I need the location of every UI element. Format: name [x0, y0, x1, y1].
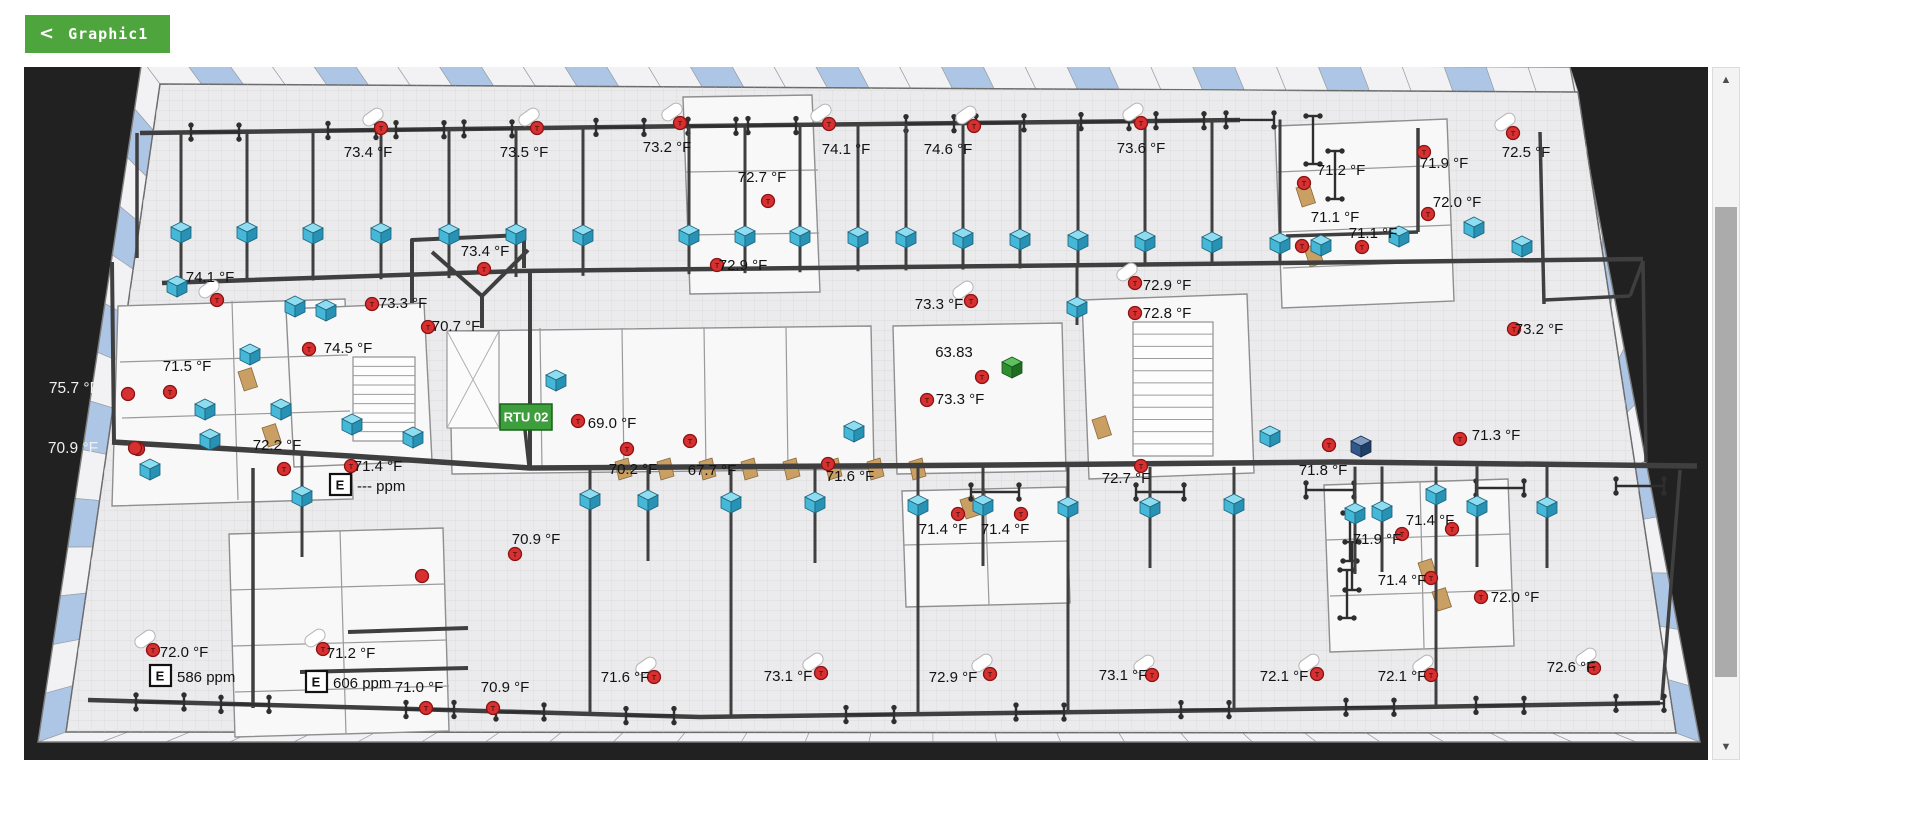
graphic-title: Graphic1 [68, 25, 148, 43]
temp-sensor-dot[interactable]: T [684, 435, 697, 448]
temp-label: 70.9 °F [481, 679, 530, 696]
vav-device-cube[interactable] [1058, 497, 1078, 518]
stairwell [1133, 322, 1213, 456]
temp-label: 72.2 °F [253, 437, 302, 454]
temp-label: 73.3 °F [936, 391, 985, 408]
temp-label: 74.5 °F [324, 340, 373, 357]
svg-text:T: T [426, 325, 431, 332]
vav-device-cube[interactable] [1140, 497, 1160, 518]
window-cell [485, 732, 561, 742]
temp-sensor-dot[interactable]: T [572, 415, 585, 428]
window-cell [805, 732, 871, 742]
co2-sensor-icon: E [336, 477, 345, 492]
window-cell [677, 732, 747, 742]
vav-device-cube[interactable] [1351, 436, 1371, 457]
back-button[interactable]: < Graphic1 [25, 15, 170, 53]
temp-label: 71.6 °F [601, 669, 650, 686]
duct-line [112, 262, 114, 442]
temp-sensor-dot[interactable]: T [211, 294, 224, 307]
temp-label: 63.83 [935, 344, 973, 361]
vav-device-cube[interactable] [896, 227, 916, 248]
rtu-label: RTU 02 [504, 409, 549, 424]
temp-label: 73.3 °F [379, 295, 428, 312]
temp-sensor-dot[interactable]: T [648, 671, 661, 684]
svg-text:T: T [980, 375, 985, 382]
svg-text:T: T [1426, 212, 1431, 219]
temp-sensor-dot[interactable]: T [531, 122, 544, 135]
svg-text:T: T [1360, 245, 1365, 252]
temp-sensor-dot[interactable]: T [1296, 240, 1309, 253]
temp-label: 72.0 °F [1433, 194, 1482, 211]
duct-line [1630, 261, 1643, 296]
svg-text:T: T [1302, 181, 1307, 188]
svg-text:T: T [1429, 673, 1434, 680]
svg-text:T: T [678, 121, 683, 128]
vav-device-cube[interactable] [908, 495, 928, 516]
vav-device-cube[interactable] [790, 226, 810, 247]
temp-label: 73.6 °F [1117, 140, 1166, 157]
vertical-scrollbar[interactable]: ▲ ▼ [1712, 67, 1740, 760]
window-cell [933, 733, 997, 742]
temp-sensor-dot[interactable]: T [366, 298, 379, 311]
temp-label: 72.6 °F [1547, 659, 1596, 676]
vav-device-cube[interactable] [1270, 233, 1290, 254]
co2-sensor-icon: E [312, 674, 321, 689]
svg-text:T: T [1511, 131, 1516, 138]
vav-device-cube[interactable] [973, 495, 993, 516]
svg-text:T: T [988, 672, 993, 679]
vav-device-cube[interactable] [1224, 494, 1244, 515]
vav-device-cube[interactable] [573, 225, 593, 246]
temp-sensor-dot[interactable]: T [1298, 177, 1311, 190]
vav-device-cube[interactable] [1537, 497, 1557, 518]
temp-sensor-dot[interactable]: T [1146, 669, 1159, 682]
svg-text:T: T [972, 124, 977, 131]
temp-label: 71.4 °F [919, 521, 968, 538]
temp-label: 71.4 °F [1378, 572, 1427, 589]
vav-device-cube[interactable] [1345, 503, 1365, 524]
vav-device-cube[interactable] [1202, 232, 1222, 253]
svg-text:T: T [1019, 512, 1024, 519]
svg-text:T: T [151, 648, 156, 655]
temp-sensor-dot[interactable]: T [487, 702, 500, 715]
vav-device-cube[interactable] [140, 459, 160, 480]
svg-text:T: T [688, 439, 693, 446]
vav-device-cube[interactable] [195, 399, 215, 420]
temp-label: 72.8 °F [1143, 305, 1192, 322]
vav-device-cube[interactable] [240, 344, 260, 365]
temp-label: 70.9 °F [512, 531, 561, 548]
temp-label: 70.2 °F [609, 461, 658, 478]
temp-label: 74.1 °F [822, 141, 871, 158]
temp-sensor-dot[interactable]: T [478, 263, 491, 276]
vav-device-cube[interactable] [292, 486, 312, 507]
temp-sensor-dot[interactable]: T [965, 295, 978, 308]
vav-device-cube[interactable] [1311, 235, 1331, 256]
vav-device-cube[interactable] [1010, 229, 1030, 250]
svg-text:T: T [1458, 437, 1463, 444]
svg-text:T: T [1300, 244, 1305, 251]
vav-device-cube[interactable] [403, 427, 423, 448]
temp-label: 71.2 °F [327, 645, 376, 662]
vav-device-cube[interactable] [237, 222, 257, 243]
temp-label: 72.9 °F [1143, 277, 1192, 294]
temp-sensor-dot[interactable]: T [1425, 572, 1438, 585]
temp-label: 69.0 °F [588, 415, 637, 432]
vav-device-cube[interactable] [200, 429, 220, 450]
window-cell [1243, 733, 1317, 742]
temp-sensor-dot[interactable]: T [509, 548, 522, 561]
scrollbar-down-arrow[interactable]: ▼ [1713, 737, 1739, 757]
temp-sensor-dot[interactable]: T [621, 443, 634, 456]
svg-text:T: T [1327, 443, 1332, 450]
temp-label: 74.6 °F [924, 141, 973, 158]
temp-label: 71.1 °F [1311, 209, 1360, 226]
svg-text:T: T [652, 675, 657, 682]
temp-sensor-dot[interactable]: T [420, 702, 433, 715]
temp-label: 71.6 °F [826, 468, 875, 485]
vav-device-cube[interactable] [546, 370, 566, 391]
ppm-label: --- ppm [357, 478, 405, 495]
vav-device-cube[interactable] [285, 296, 305, 317]
vav-device-cube[interactable] [1464, 217, 1484, 238]
temp-sensor-dot[interactable]: T [1425, 669, 1438, 682]
temp-label: 71.4 °F [1406, 512, 1455, 529]
temp-label: 71.9 °F [1420, 155, 1469, 172]
temp-label: 71.4 °F [981, 521, 1030, 538]
vav-device-cube[interactable] [506, 224, 526, 245]
temp-sensor-dot[interactable]: T [375, 122, 388, 135]
temp-label-exterior: 75.7 °F [49, 380, 99, 397]
temp-sensor-dot[interactable]: T [1129, 307, 1142, 320]
window-cell [549, 732, 623, 742]
svg-text:T: T [827, 122, 832, 129]
vav-device-cube[interactable] [1068, 230, 1088, 251]
temp-label: 73.4 °F [461, 243, 510, 260]
temp-sensor-dot[interactable] [122, 388, 135, 401]
temp-label: 67.7 °F [688, 462, 737, 479]
vav-device-cube[interactable] [1372, 501, 1392, 522]
temp-sensor-dot[interactable]: T [823, 118, 836, 131]
temp-sensor-dot[interactable]: T [1507, 127, 1520, 140]
temp-label: 73.3 °F [915, 296, 964, 313]
graphic-canvas: RTU 02TTTTTTTTTTTTTTTTTTTTTTTTTTTTTTTTTT… [24, 67, 1708, 760]
vav-device-cube[interactable] [271, 399, 291, 420]
temp-sensor-dot[interactable]: T [278, 463, 291, 476]
temp-sensor-dot[interactable]: T [1454, 433, 1467, 446]
temp-label: 72.7 °F [738, 169, 787, 186]
temp-sensor-dot[interactable]: T [921, 394, 934, 407]
temp-sensor-dot[interactable]: T [976, 371, 989, 384]
temp-label: 71.2 °F [1317, 162, 1366, 179]
vav-device-cube[interactable] [735, 226, 755, 247]
temp-label: 73.4 °F [344, 144, 393, 161]
svg-text:T: T [307, 347, 312, 354]
temp-label: 72.0 °F [1491, 589, 1540, 606]
vav-device-cube[interactable] [1512, 236, 1532, 257]
vav-device-cube[interactable] [844, 421, 864, 442]
svg-text:T: T [1429, 576, 1434, 583]
temp-sensor-dot[interactable]: T [674, 117, 687, 130]
temp-label: 72.5 °F [1502, 144, 1551, 161]
vav-device-cube[interactable] [1467, 496, 1487, 517]
vav-device-cube[interactable] [848, 227, 868, 248]
temp-sensor-dot[interactable]: T [984, 668, 997, 681]
scrollbar-thumb[interactable] [1715, 207, 1737, 677]
temp-label: 72.9 °F [929, 669, 978, 686]
vav-device-cube[interactable] [1135, 231, 1155, 252]
vav-device-cube[interactable] [1426, 484, 1446, 505]
temp-label: 71.8 °F [1299, 462, 1348, 479]
svg-text:T: T [215, 298, 220, 305]
svg-text:T: T [491, 706, 496, 713]
svg-text:T: T [321, 647, 326, 654]
svg-text:T: T [424, 706, 429, 713]
vav-device-cube[interactable] [342, 414, 362, 435]
temp-label: 72.7 °F [1102, 470, 1151, 487]
temp-label-exterior: 70.9 °F [48, 440, 98, 457]
temp-sensor-dot[interactable]: T [1015, 508, 1028, 521]
temp-sensor-dot[interactable]: T [968, 120, 981, 133]
temp-label: 74.1 °F [186, 269, 235, 286]
window-cell [869, 733, 933, 743]
svg-text:T: T [576, 419, 581, 426]
svg-text:T: T [535, 126, 540, 133]
svg-text:T: T [925, 398, 930, 405]
co2-sensor-icon: E [156, 668, 165, 683]
svg-text:T: T [969, 299, 974, 306]
temp-sensor-dot[interactable]: T [1356, 241, 1369, 254]
temp-label: 71.0 °F [395, 679, 444, 696]
svg-text:T: T [282, 467, 287, 474]
vav-device-cube[interactable] [1002, 357, 1022, 378]
vav-device-cube[interactable] [1260, 426, 1280, 447]
temp-label: 72.1 °F [1260, 668, 1309, 685]
window-cell [1486, 67, 1536, 92]
temp-label: 73.2 °F [643, 139, 692, 156]
svg-text:T: T [766, 199, 771, 206]
scrollbar-up-arrow[interactable]: ▲ [1713, 70, 1739, 90]
vav-device-cube[interactable] [953, 228, 973, 249]
vav-device-cube[interactable] [371, 223, 391, 244]
temp-label: 72.1 °F [1378, 668, 1427, 685]
temp-sensor-dot[interactable]: T [1135, 117, 1148, 130]
vav-device-cube[interactable] [638, 490, 658, 511]
svg-text:T: T [379, 126, 384, 133]
window-cell [1057, 733, 1125, 742]
temp-sensor-dot[interactable]: T [1475, 591, 1488, 604]
vav-device-cube[interactable] [721, 492, 741, 513]
temp-label: 73.1 °F [764, 668, 813, 685]
co2-sensor[interactable]: E606 ppm [306, 671, 391, 692]
temp-label: 73.5 °F [500, 144, 549, 161]
window-cell [741, 732, 809, 742]
vav-device-cube[interactable] [303, 223, 323, 244]
co2-sensor[interactable]: E--- ppm [330, 474, 405, 495]
svg-text:T: T [1139, 121, 1144, 128]
svg-text:T: T [819, 671, 824, 678]
temp-label: 72.0 °F [160, 644, 209, 661]
temp-label: 71.5 °F [163, 358, 212, 375]
vav-device-cube[interactable] [580, 489, 600, 510]
temp-sensor-dot[interactable]: T [164, 386, 177, 399]
back-chevron-icon: < [39, 25, 54, 43]
temp-sensor-dot[interactable] [416, 570, 429, 583]
rtu-unit[interactable]: RTU 02 [500, 404, 552, 430]
co2-sensor[interactable]: E586 ppm [150, 665, 235, 686]
temp-label: 72.9 °F [719, 257, 768, 274]
temp-label: 70.7 °F [432, 318, 481, 335]
window-cell [995, 733, 1061, 742]
ppm-label: 586 ppm [177, 669, 235, 686]
temp-sensor-dot[interactable]: T [147, 644, 160, 657]
temp-label: 71.1 °F [1349, 225, 1398, 242]
svg-text:T: T [168, 390, 173, 397]
svg-text:T: T [956, 512, 961, 519]
temp-label: 73.1 °F [1099, 667, 1148, 684]
temp-label: 71.4 °F [354, 458, 403, 475]
svg-text:T: T [625, 447, 630, 454]
duct-line [1643, 261, 1646, 462]
temp-label: 71.9 °F [1353, 531, 1402, 548]
ppm-label: 606 ppm [333, 675, 391, 692]
vav-device-cube[interactable] [679, 225, 699, 246]
temp-label: 73.2 °F [1515, 321, 1564, 338]
svg-text:T: T [482, 267, 487, 274]
vav-device-cube[interactable] [439, 224, 459, 245]
window-cell [1181, 733, 1253, 742]
temp-sensor-dot[interactable]: T [952, 508, 965, 521]
svg-text:T: T [1133, 311, 1138, 318]
window-cell [1119, 733, 1189, 742]
temp-sensor-dot[interactable] [129, 442, 142, 455]
temp-sensor-dot[interactable]: T [762, 195, 775, 208]
svg-text:T: T [513, 552, 518, 559]
vav-device-cube[interactable] [805, 492, 825, 513]
vav-device-cube[interactable] [167, 276, 187, 297]
vav-device-cube[interactable] [1067, 297, 1087, 318]
temp-sensor-dot[interactable]: T [815, 667, 828, 680]
window-cell [613, 732, 685, 742]
vav-device-cube[interactable] [171, 222, 191, 243]
svg-text:T: T [370, 302, 375, 309]
temp-sensor-dot[interactable]: T [1323, 439, 1336, 452]
window-cell [1444, 67, 1495, 92]
temp-sensor-dot[interactable]: T [1129, 277, 1142, 290]
room-outline [449, 326, 874, 474]
floorplan-svg: RTU 02TTTTTTTTTTTTTTTTTTTTTTTTTTTTTTTTTT… [24, 67, 1708, 760]
vav-device-cube[interactable] [316, 300, 336, 321]
svg-text:T: T [1150, 673, 1155, 680]
svg-text:T: T [1479, 595, 1484, 602]
temp-sensor-dot[interactable]: T [303, 343, 316, 356]
temp-sensor-dot[interactable]: T [1311, 668, 1324, 681]
temp-label: 71.3 °F [1472, 427, 1521, 444]
svg-text:T: T [1133, 281, 1138, 288]
svg-text:T: T [1315, 672, 1320, 679]
